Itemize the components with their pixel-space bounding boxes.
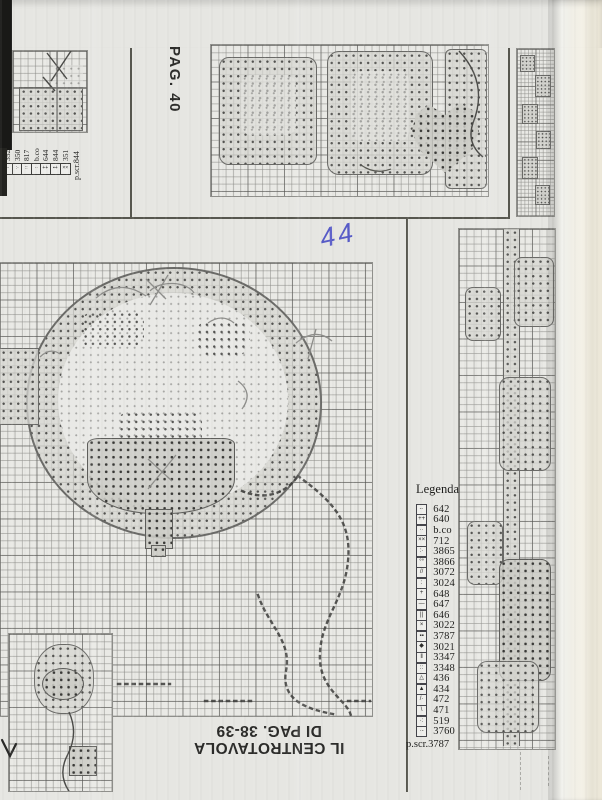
legend-item: \471	[416, 705, 506, 716]
thread-color-number: 3347	[433, 652, 455, 663]
legend-item: ++640	[416, 515, 506, 526]
scanned-magazine-page: 352 350 817 b.co 644 844 351 -- :· :: ··…	[0, 0, 602, 800]
thread-color-number: 3348	[433, 663, 455, 674]
legend-item: △436	[416, 674, 506, 685]
legend-item: °°3866	[416, 557, 506, 568]
thread-color-number: 844	[51, 150, 60, 161]
thread-color-number: 472	[433, 694, 449, 705]
legend-item: /·472	[416, 695, 506, 706]
thread-color-number: 817	[22, 150, 31, 161]
thread-color-number: 712	[433, 536, 449, 547]
stitch-motif	[520, 55, 535, 72]
thread-color-number: 648	[433, 589, 449, 600]
legend-item: ·-3760	[416, 726, 506, 737]
leaf-motif	[465, 287, 501, 341]
backstitch-color-label: p.scr.844	[72, 151, 81, 180]
thread-color-number: b.co	[433, 525, 452, 536]
thread-color-number: 351	[61, 150, 70, 161]
thread-color-number: 3760	[433, 726, 455, 737]
scan-mark	[520, 752, 521, 790]
thread-color-number: 3865	[433, 546, 455, 557]
legend-item: ×3022	[416, 621, 506, 632]
legend-item: ▪▪3787	[416, 631, 506, 642]
thread-color-number: 471	[433, 705, 449, 716]
backstitch-lines	[13, 51, 87, 132]
legend-item: :3024	[416, 578, 506, 589]
stitch-symbol-box: ◆	[416, 641, 427, 652]
backstitch-stem-line	[9, 634, 112, 791]
legend-item: ·:519	[416, 716, 506, 727]
stitch-symbol-box: -·	[416, 504, 427, 515]
leaf-motif	[499, 377, 551, 471]
scan-edge-black-strip	[0, 148, 7, 196]
thread-color-number: b.co	[32, 148, 41, 161]
scan-edge-black-strip	[0, 0, 12, 150]
stitch-symbol-box: /·	[416, 694, 427, 705]
stitch-symbol-box: :·	[416, 546, 427, 557]
stitch-symbol-box: —	[416, 599, 427, 610]
legend-item: ||646	[416, 610, 506, 621]
stitch-symbol-box: ××	[60, 163, 71, 175]
thread-color-number: 3866	[433, 557, 455, 568]
column-divider-rule	[130, 48, 132, 218]
top-left-chart	[12, 50, 88, 133]
stitch-symbol-box: ‖	[416, 652, 427, 663]
scanner-background-band	[0, 0, 602, 48]
thread-color-number: 642	[433, 504, 449, 515]
stitch-symbol-box: °°	[416, 557, 427, 568]
stitch-symbol-box: +	[416, 588, 427, 599]
stitch-symbol-box: ··	[416, 525, 427, 536]
legend-item: ××712	[416, 536, 506, 547]
thread-color-number: 640	[433, 514, 449, 525]
thread-color-number: 3021	[433, 642, 455, 653]
page-right-edge	[548, 0, 602, 800]
stitch-symbol-box: ||	[416, 610, 427, 621]
backstitch-color-label: p.scr.3787	[406, 739, 506, 750]
stitch-motif	[522, 104, 538, 124]
chart-title-line1: IL CENTROTAVOLA	[158, 739, 380, 756]
legend-item: ▲434	[416, 684, 506, 695]
backstitch-lines	[40, 275, 332, 489]
thread-color-number: 3787	[433, 631, 455, 642]
handwritten-note: 44	[317, 217, 359, 255]
legend-item: -·642	[416, 504, 506, 515]
thread-color-number: 436	[433, 673, 449, 684]
legend-title: Legenda	[416, 482, 506, 497]
thread-color-number: 3024	[433, 578, 455, 589]
thread-color-number: 519	[433, 716, 449, 727]
legend-panel: Legenda -·642 ++640 ··b.co ××712 :·3865 …	[406, 482, 506, 750]
chart-title-rotated: IL CENTROTAVOLA DI PAG. 38-39	[158, 722, 380, 756]
stitch-symbol-box: ++	[416, 514, 427, 525]
stitch-symbol-box: △	[416, 673, 427, 684]
thread-color-number: 434	[433, 684, 449, 695]
stitch-symbol-box: ▲	[416, 684, 427, 695]
stitch-symbol-box: ×	[416, 620, 427, 631]
legend-item: :·3865	[416, 546, 506, 557]
page-number-label: PAG. 40	[166, 46, 183, 113]
stitch-symbol-box: ·:	[416, 716, 427, 727]
legend-item: +648	[416, 589, 506, 600]
stitch-motif	[522, 157, 538, 179]
top-middle-chart	[210, 44, 489, 197]
thread-color-number: 644	[41, 150, 50, 161]
stitch-symbol-box: ▪▪	[416, 631, 427, 642]
column-divider-rule	[508, 48, 510, 218]
stitch-symbol-box: \	[416, 705, 427, 716]
chart-title-line2: DI PAG. 38-39	[158, 722, 380, 739]
section-divider-rule	[0, 217, 510, 219]
stitch-symbol-box: //	[416, 567, 427, 578]
legend-item: —647	[416, 599, 506, 610]
stitch-symbol-box: :	[416, 578, 427, 589]
stitch-symbol-box: ▪+	[50, 163, 61, 175]
stitch-symbol-box: ·-	[416, 726, 427, 737]
legend-item: ··b.co	[416, 525, 506, 536]
stitch-symbol-box: ++	[40, 163, 51, 175]
legend-item: ‖3347	[416, 652, 506, 663]
legend-item: ◆3021	[416, 642, 506, 653]
thread-color-number: 3022	[433, 620, 455, 631]
legend-item: ::3348	[416, 663, 506, 674]
stitch-symbol-box: ××	[416, 535, 427, 546]
thread-color-number: 3072	[433, 567, 455, 578]
legend-item: //3072	[416, 568, 506, 579]
stitch-symbol-box: ::	[21, 163, 32, 175]
thread-color-number: 350	[13, 150, 22, 161]
thread-color-number: 646	[433, 610, 449, 621]
stitch-symbol-box: ::	[416, 663, 427, 674]
thread-color-number: 647	[433, 599, 449, 610]
pen-check-mark	[0, 730, 24, 770]
backstitch-lines	[211, 45, 488, 196]
